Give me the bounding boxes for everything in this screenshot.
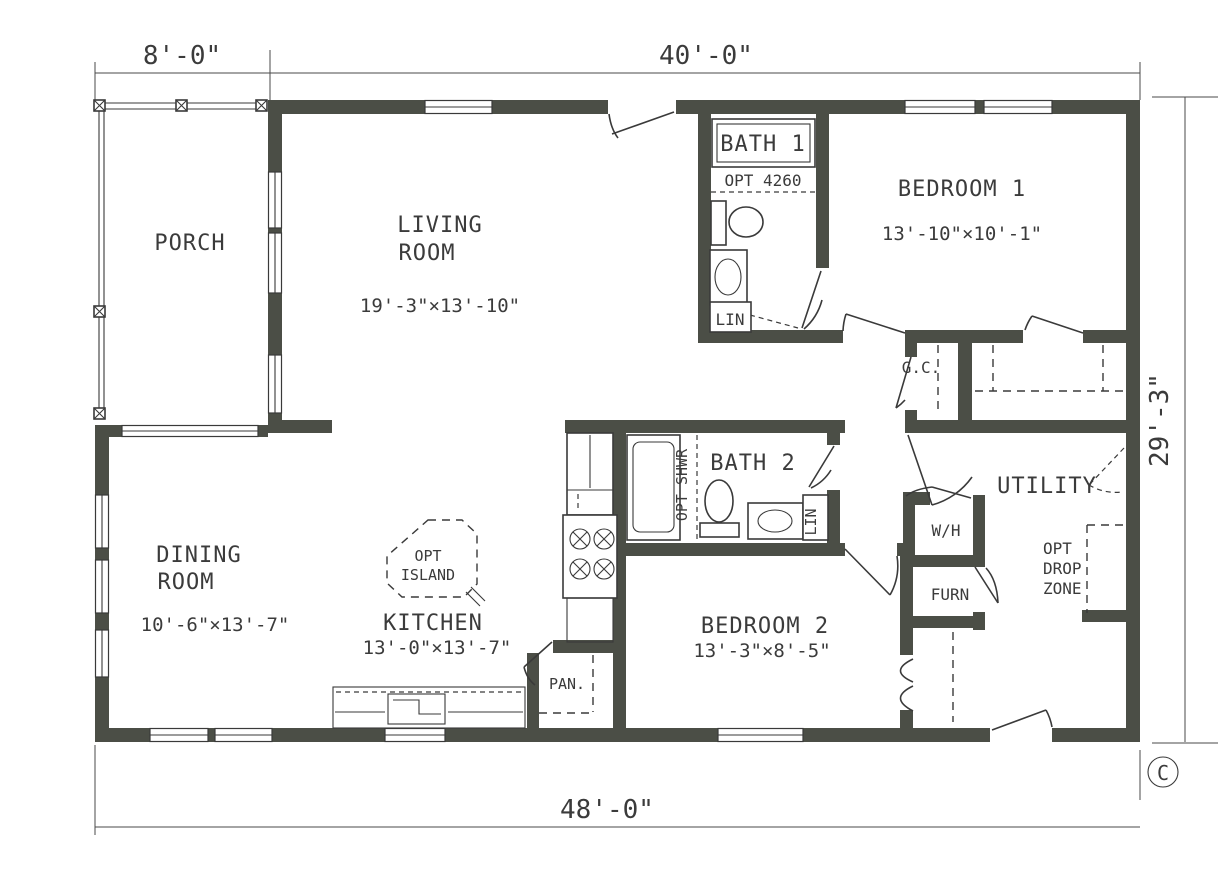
gc-closet-label: G.C. xyxy=(902,358,941,377)
bath1-label: BATH 1 xyxy=(720,132,805,157)
bedroom2-label: BEDROOM 2 xyxy=(701,614,829,639)
dim-top-main: 40'-0" xyxy=(659,41,753,71)
bath2-linen-label: LIN xyxy=(802,508,820,535)
bath2-vanity-sink xyxy=(748,503,803,539)
bath1-vanity-sink xyxy=(710,250,747,305)
bath2-toilet xyxy=(700,480,739,537)
bath1-linen-label: LIN xyxy=(716,310,745,329)
bedroom1-door xyxy=(843,314,905,333)
window xyxy=(718,729,803,742)
dining-room-dims: 10'-6"×13'-7" xyxy=(141,614,290,636)
window xyxy=(984,101,1052,114)
window xyxy=(96,630,109,677)
dim-top-left: 8'-0" xyxy=(143,41,221,71)
kitchen-counter-strip xyxy=(567,433,613,515)
porch-label: PORCH xyxy=(154,231,225,256)
copyright-letter: C xyxy=(1157,761,1169,785)
dining-room-label-1: DINING xyxy=(156,543,241,568)
bedroom1-closet-shelf xyxy=(975,345,1124,391)
kitchen-sink-counter xyxy=(333,687,525,728)
bedroom1-dims: 13'-10"×10'-1" xyxy=(882,223,1042,245)
kitchen-dims: 13'-0"×13'-7" xyxy=(363,637,512,659)
copyright-mark: C xyxy=(1148,757,1178,787)
window xyxy=(905,101,975,114)
front-door xyxy=(609,112,674,138)
living-room-label-1: LIVING xyxy=(397,213,482,238)
bath2-opt-shower-label: OPT SHWR xyxy=(673,448,691,521)
island-label-2: ISLAND xyxy=(401,566,455,584)
window xyxy=(269,355,282,413)
furnace-door xyxy=(975,567,998,603)
utility-drop-zone-outline xyxy=(1087,525,1126,613)
bath1-option-label: OPT 4260 xyxy=(724,171,801,190)
utility-back-door xyxy=(992,710,1052,730)
water-heater-label: W/H xyxy=(932,521,961,540)
bedroom1-label: BEDROOM 1 xyxy=(898,177,1026,202)
bedroom2-closet-bifold xyxy=(901,659,914,711)
drop-zone-label-3: ZONE xyxy=(1043,579,1082,598)
porch-railing xyxy=(94,100,267,419)
living-room-label-2: ROOM xyxy=(399,241,456,266)
kitchen-label: KITCHEN xyxy=(383,611,483,636)
bath1-door xyxy=(802,271,822,329)
island-label-1: OPT xyxy=(414,547,441,565)
dining-room-label-2: ROOM xyxy=(158,570,215,595)
linen1-door-swing xyxy=(750,315,798,328)
drop-zone-label-2: DROP xyxy=(1043,559,1082,578)
bedroom1-closet-door xyxy=(1025,316,1083,333)
bedroom2-dims: 13'-3"×8'-5" xyxy=(693,640,830,662)
window xyxy=(385,729,445,742)
bedroom2-door xyxy=(845,549,898,595)
bath2-label: BATH 2 xyxy=(710,451,795,476)
bath1-toilet xyxy=(711,201,763,245)
dim-right-side: 29'-3" xyxy=(1145,373,1175,467)
window xyxy=(150,729,208,742)
pantry-label: PAN. xyxy=(549,675,585,693)
window xyxy=(425,101,492,114)
window xyxy=(96,495,109,548)
drop-zone-label-1: OPT xyxy=(1043,539,1072,558)
kitchen-range xyxy=(563,515,617,642)
bath2-door xyxy=(809,446,834,488)
utility-label: UTILITY xyxy=(997,474,1097,499)
living-room-dims: 19'-3"×13'-10" xyxy=(360,295,520,317)
floor-plan-sheet: 8'-0" 40'-0" 29'-3" 48'-0" xyxy=(0,0,1227,886)
window xyxy=(122,426,258,437)
furnace-label: FURN xyxy=(931,585,970,604)
window xyxy=(96,560,109,613)
dim-bottom: 48'-0" xyxy=(560,795,654,825)
window xyxy=(215,729,272,742)
window xyxy=(269,172,282,228)
porch-posts xyxy=(94,100,267,419)
floor-plan-drawing: 8'-0" 40'-0" 29'-3" 48'-0" xyxy=(0,0,1227,886)
window xyxy=(269,233,282,293)
